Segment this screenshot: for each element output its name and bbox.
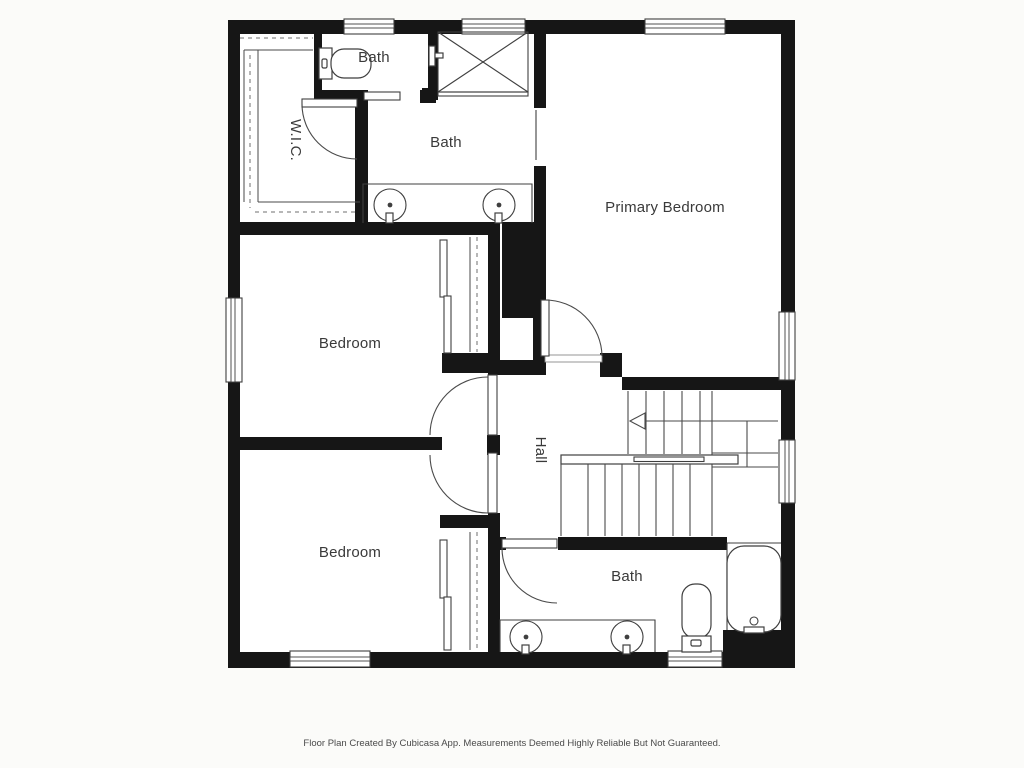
bathtub-icon bbox=[727, 543, 781, 633]
room-label-bath-lower: Bath bbox=[611, 568, 643, 585]
toilet-icon bbox=[682, 584, 711, 652]
window-icon bbox=[779, 312, 795, 380]
door-leaf bbox=[364, 92, 400, 100]
floor-area bbox=[228, 20, 795, 668]
room-label-bedroom-middle: Bedroom bbox=[319, 335, 381, 352]
floor-plan-canvas: Primary Bedroom Bath Bath W.I.C. Bedroom… bbox=[0, 0, 1024, 768]
room-label-bath-small: Bath bbox=[358, 49, 390, 66]
floor-plan-page: Primary Bedroom Bath Bath W.I.C. Bedroom… bbox=[0, 0, 1024, 768]
window-icon bbox=[779, 440, 795, 503]
window-icon bbox=[645, 19, 725, 34]
window-icon bbox=[226, 298, 242, 382]
room-label-bedroom-lower: Bedroom bbox=[319, 544, 381, 561]
window-icon bbox=[668, 651, 722, 667]
room-label-bath-ensuite: Bath bbox=[430, 134, 462, 151]
window-icon bbox=[344, 19, 394, 34]
room-label-wic: W.I.C. bbox=[287, 119, 304, 161]
room-label-primary-bedroom: Primary Bedroom bbox=[605, 199, 725, 216]
window-icon bbox=[290, 651, 370, 667]
footer-disclaimer: Floor Plan Created By Cubicasa App. Meas… bbox=[303, 738, 720, 749]
room-label-hall: Hall bbox=[532, 437, 549, 464]
